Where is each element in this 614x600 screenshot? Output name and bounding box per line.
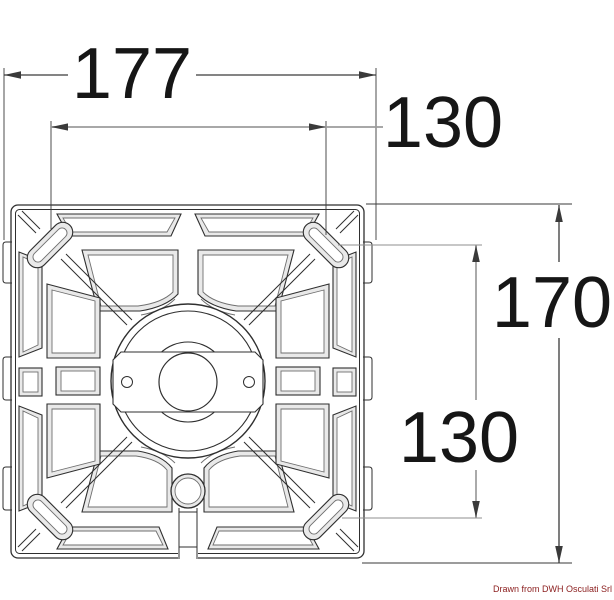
dim-arrow — [555, 546, 563, 563]
dim-width-label: 177 — [72, 34, 192, 114]
dim-arrow — [359, 71, 376, 79]
dim-hole-h-label: 130 — [383, 83, 503, 163]
dim-arrow — [51, 123, 68, 130]
dim-overall-height: 170 — [362, 204, 612, 563]
pin-hole-right — [244, 377, 255, 388]
pin-hole-left — [122, 377, 133, 388]
credit-text: Drawn from DWH Osculati Srl — [493, 584, 612, 594]
central-hub — [111, 304, 265, 458]
center-hole — [159, 353, 217, 411]
dim-arrow — [472, 501, 480, 518]
dim-height-label: 170 — [492, 263, 612, 343]
dim-hole-v-label: 130 — [399, 398, 519, 478]
dim-arrow — [555, 205, 563, 222]
dim-arrow — [4, 71, 21, 79]
dim-arrow — [472, 245, 480, 262]
drawing-canvas: 177 130 170 130 Drawn from DWH Osculati … — [0, 0, 614, 600]
technical-drawing: 177 130 170 130 Drawn from DWH Osculati … — [0, 0, 614, 600]
dim-arrow — [309, 123, 326, 130]
